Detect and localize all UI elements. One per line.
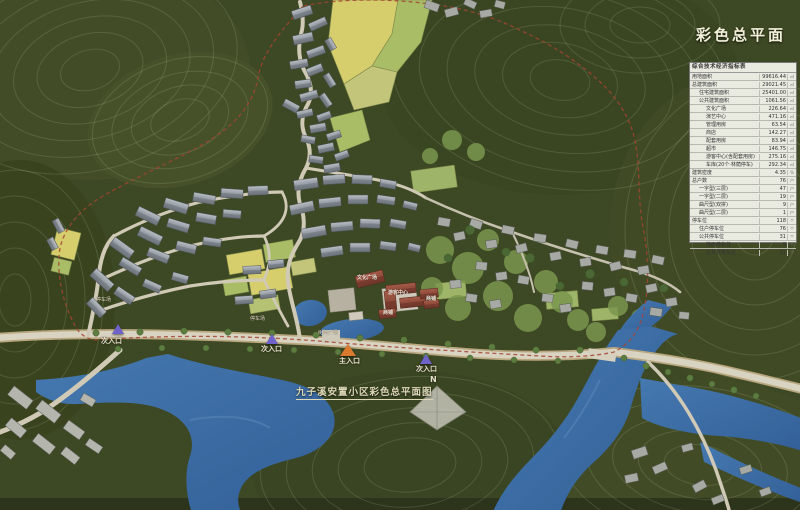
indicator-table-row: 曲尺型(二层)1户 <box>690 208 796 216</box>
tree-plaza-label: 树阵广场 <box>318 331 338 336</box>
site-plan-screenshot: 彩色总平面 综合技术经济指标表 用地面积99616.44㎡总建筑面积29021.… <box>0 0 800 510</box>
secondary-entrance-marker-center <box>266 334 278 344</box>
secondary-entrance-label-east: 次入口 <box>416 366 437 373</box>
site-plan-map <box>0 0 800 510</box>
indicator-table-row: 游客中心(含配套用房)275.16㎡ <box>690 152 796 160</box>
parking-label-center: 停车场 <box>250 317 265 322</box>
main-entrance-label: 主入口 <box>339 358 360 365</box>
indicator-table-row: 建筑密度4.35% <box>690 168 796 176</box>
indicator-table-row: 商店142.27㎡ <box>690 128 796 136</box>
north-label: N <box>430 375 437 384</box>
plan-caption: 九子溪安置小区彩色总平面图 <box>296 384 433 400</box>
indicator-table-row: 文化广场226.64㎡ <box>690 104 796 112</box>
indicator-table-row: 配套用房83.94㎡ <box>690 136 796 144</box>
indicator-table-row: 车库(20个·林荫停车)292.34㎡ <box>690 160 796 168</box>
indicator-table-row: 公共停车位31个 <box>690 232 796 240</box>
indicator-table-row: 曲尺型(双拼)9户 <box>690 200 796 208</box>
culture-square-label: 文化广场 <box>357 276 377 281</box>
indicator-table-row: 管理用房63.54㎡ <box>690 120 796 128</box>
indicator-table: 综合技术经济指标表 用地面积99616.44㎡总建筑面积29021.45㎡住宅建… <box>689 62 797 243</box>
indicator-table-row: 住宅建筑面积25401.00㎡ <box>690 88 796 96</box>
indicator-table-row: 演艺中心471.16㎡ <box>690 112 796 120</box>
indicator-table-row: 超市146.75㎡ <box>690 144 796 152</box>
indicator-table-row: 用地面积99616.44㎡ <box>690 73 796 80</box>
parking-label-west: 停车场 <box>96 298 111 303</box>
main-entrance-marker <box>340 344 356 356</box>
indicator-table-row: 总户数76户 <box>690 176 796 184</box>
indicator-table-row: 一字型(二层)19户 <box>690 192 796 200</box>
visitor-center-label: 游客中心 <box>388 291 408 296</box>
indicator-table-row: 地面停车位9个 <box>690 240 796 248</box>
terrain-hills <box>0 0 800 510</box>
indicator-table-row: 停车位118个 <box>690 216 796 224</box>
indicator-table-row: 公共建筑面积1061.56㎡ <box>690 96 796 104</box>
indicator-table-row: 住户停车位76个 <box>690 224 796 232</box>
indicator-table-body: 用地面积99616.44㎡总建筑面积29021.45㎡住宅建筑面积25401.0… <box>690 73 796 256</box>
indicator-table-row: 公共充电车位22个 <box>690 248 796 256</box>
indicator-table-row: 一字型(三层)47户 <box>690 184 796 192</box>
shop-label-south: 商铺 <box>383 311 393 316</box>
page-title: 彩色总平面 <box>696 24 786 45</box>
secondary-entrance-marker-west <box>112 324 124 334</box>
secondary-entrance-label-center: 次入口 <box>261 346 282 353</box>
indicator-table-title: 综合技术经济指标表 <box>690 63 796 73</box>
secondary-entrance-marker-east <box>420 354 432 364</box>
shop-label-east: 商铺 <box>426 297 436 302</box>
indicator-table-row: 总建筑面积29021.45㎡ <box>690 80 796 88</box>
secondary-entrance-label-west: 次入口 <box>101 338 122 345</box>
